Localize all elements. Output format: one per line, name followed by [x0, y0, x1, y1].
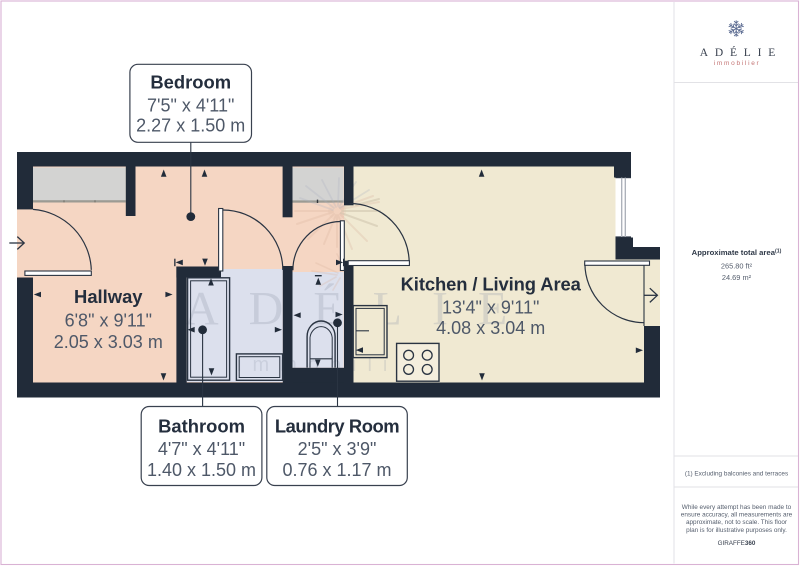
svg-text:Laundry Room: Laundry Room [275, 416, 399, 437]
svg-text:1.40 x 1.50 m: 1.40 x 1.50 m [147, 460, 256, 480]
svg-text:7'5" x 4'11": 7'5" x 4'11" [147, 96, 234, 116]
svg-text:2.27 x 1.50 m: 2.27 x 1.50 m [136, 116, 245, 136]
svg-text:24.69 m²: 24.69 m² [722, 273, 752, 282]
svg-text:Kitchen / Living Area: Kitchen / Living Area [401, 273, 582, 294]
svg-text:GIRAFFE360: GIRAFFE360 [718, 540, 756, 547]
svg-text:Hallway: Hallway [74, 286, 143, 307]
svg-text:4'7" x 4'11": 4'7" x 4'11" [158, 439, 245, 459]
svg-text:immobilier: immobilier [714, 60, 761, 67]
svg-text:2.05 x 3.03 m: 2.05 x 3.03 m [54, 332, 163, 352]
svg-text:ADÉLIE: ADÉLIE [700, 45, 782, 59]
svg-text:265.80 ft²: 265.80 ft² [721, 261, 753, 270]
svg-text:Bedroom: Bedroom [150, 72, 231, 93]
svg-text:approximate, not to scale. Thi: approximate, not to scale. This floor [686, 519, 788, 526]
svg-text:Approximate total area(1): Approximate total area(1) [692, 248, 782, 257]
svg-text:4.08 x 3.04 m: 4.08 x 3.04 m [436, 318, 545, 338]
svg-text:0.76 x 1.17 m: 0.76 x 1.17 m [282, 460, 391, 480]
svg-text:plan is for illustrative purpo: plan is for illustrative purposes only. [686, 527, 787, 534]
svg-text:6'8" x 9'11": 6'8" x 9'11" [65, 311, 152, 331]
svg-text:2'5" x 3'9": 2'5" x 3'9" [298, 439, 377, 459]
svg-text:13'4" x 9'11": 13'4" x 9'11" [442, 297, 539, 317]
svg-text:Bathroom: Bathroom [158, 416, 245, 437]
svg-text:ensure accuracy, all measureme: ensure accuracy, all measurements are [681, 512, 793, 519]
svg-text:(1) Excluding balconies and te: (1) Excluding balconies and terraces [685, 471, 788, 478]
svg-text:While every attempt has been m: While every attempt has been made to [682, 504, 792, 511]
